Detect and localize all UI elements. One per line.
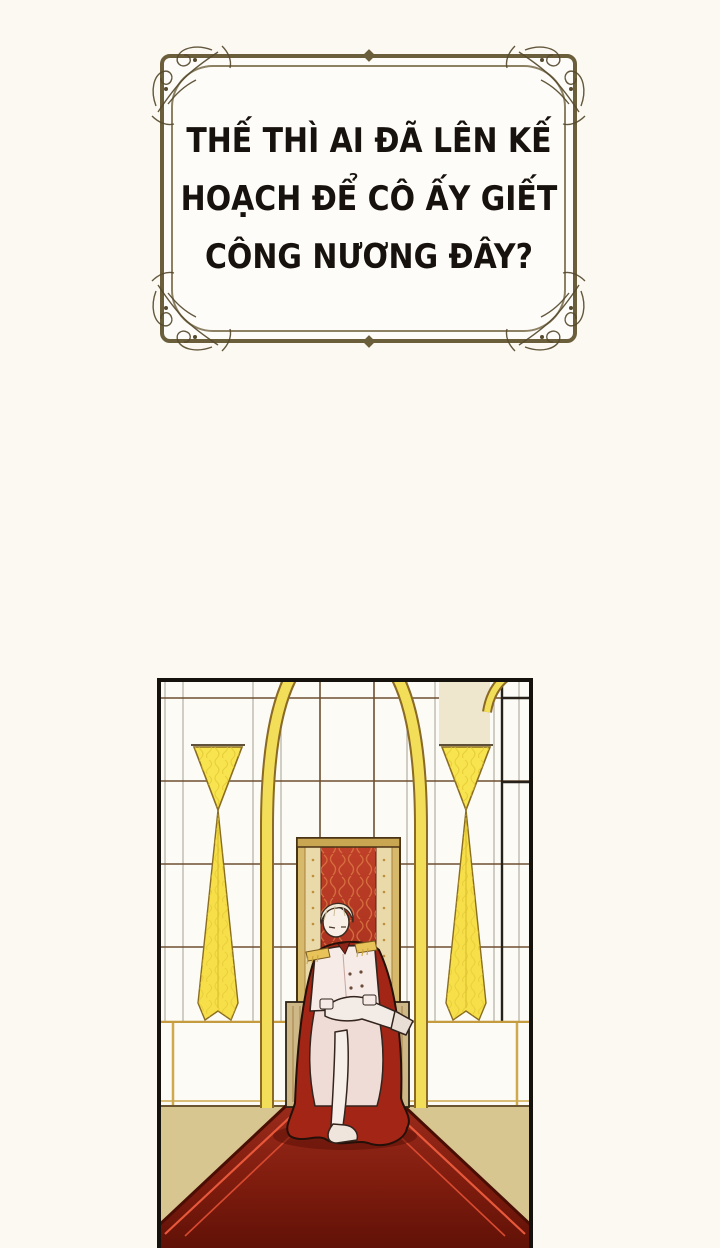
dialogue-text: THẾ THÌ AI ĐÃ LÊN KẾ HOẠCH ĐỂ CÔ ẤY GIẾT…: [180, 112, 557, 286]
comic-panel: [157, 678, 533, 1248]
cuff: [363, 995, 376, 1005]
cuff: [320, 999, 333, 1009]
dialogue-line: CÔNG NƯƠNG ĐÂY?: [180, 228, 557, 286]
throne-room-illustration: [157, 678, 533, 1248]
dialogue-line: HOẠCH ĐỂ CÔ ẤY GIẾT: [180, 170, 557, 228]
dialogue-line: THẾ THÌ AI ĐÃ LÊN KẾ: [180, 112, 557, 170]
speech-bubble: THẾ THÌ AI ĐÃ LÊN KẾ HOẠCH ĐỂ CÔ ẤY GIẾT…: [160, 54, 577, 343]
frame-bottom-diamond-icon: [362, 335, 375, 348]
page-root: { "dialogue": { "lines": ["THẾ THÌ AI ĐÃ…: [0, 0, 720, 1248]
cream-pillar: [439, 678, 490, 747]
frame-top-diamond-icon: [362, 49, 375, 62]
